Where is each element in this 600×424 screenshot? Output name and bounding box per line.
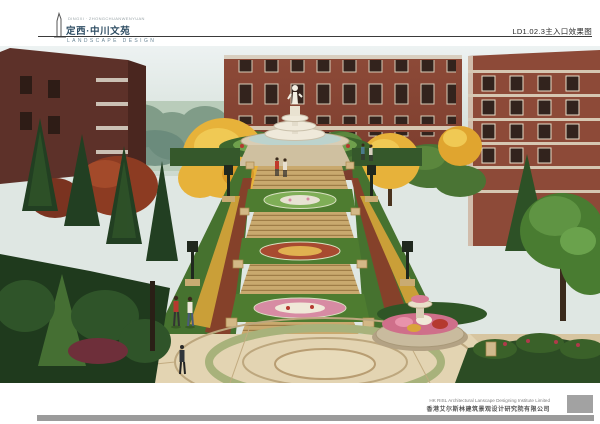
title-block-subtitle: LANDSCAPE DESIGN [67, 38, 156, 44]
footer-logo-block [567, 395, 593, 413]
rendering-scene [0, 46, 600, 383]
sheet-number-label: LD1.02.3主入口效果图 [512, 26, 592, 37]
project-title: 定西·中川文苑 [66, 23, 130, 37]
planting-bottom-left [0, 254, 171, 383]
company-name-cn: 香港艾尔斯林建筑景观设计研究院有限公司 [426, 404, 550, 413]
footer-rule-bar [37, 415, 594, 421]
company-logo-tower-icon [53, 12, 67, 38]
header-rule [38, 36, 592, 37]
company-name-en: HK RISL Architectural Lanscape Designing… [429, 398, 550, 403]
logo-tagline: DINGXI · ZHONGCHUANWENYUAN [68, 16, 145, 21]
entrance-rendering-image [0, 46, 600, 383]
presentation-sheet: DINGXI · ZHONGCHUANWENYUAN 定西·中川文苑 LANDS… [0, 0, 600, 424]
